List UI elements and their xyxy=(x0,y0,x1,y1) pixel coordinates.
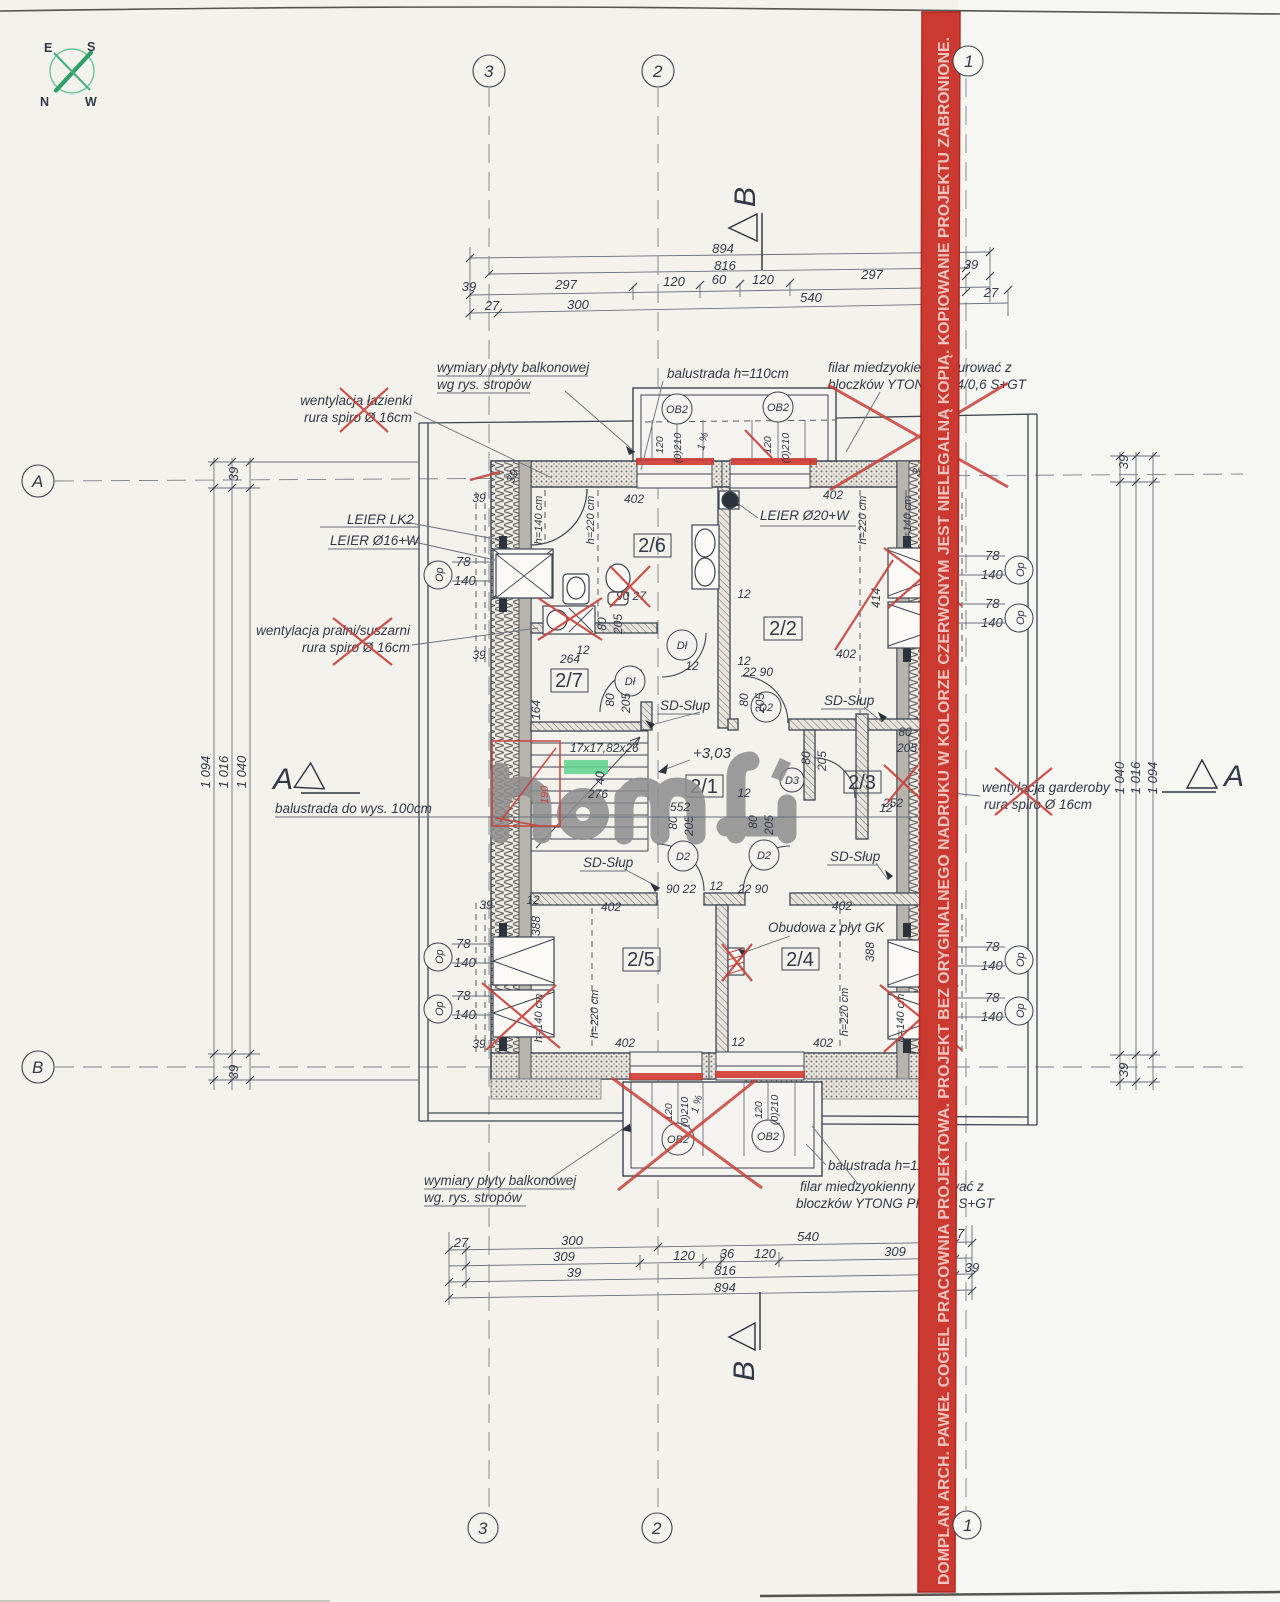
svg-text:120: 120 xyxy=(654,436,666,454)
svg-text:Dł: Dł xyxy=(677,640,688,652)
svg-text:2/4: 2/4 xyxy=(786,949,814,971)
svg-text:1 040: 1 040 xyxy=(234,755,249,788)
svg-text:B: B xyxy=(729,187,762,207)
svg-text:60: 60 xyxy=(712,272,727,287)
svg-text:402: 402 xyxy=(823,488,843,502)
svg-text:bloczków YTONG PP4/0,6 S+GT: bloczków YTONG PP4/0,6 S+GT xyxy=(796,1196,996,1211)
svg-text:39: 39 xyxy=(1116,1063,1131,1077)
svg-text:540: 540 xyxy=(797,1229,819,1244)
svg-text:27: 27 xyxy=(983,285,999,300)
svg-text:190: 190 xyxy=(539,785,551,804)
svg-text:12: 12 xyxy=(709,879,723,893)
svg-text:78: 78 xyxy=(456,936,471,951)
svg-text:1 040: 1 040 xyxy=(1112,761,1127,794)
svg-text:80: 80 xyxy=(737,693,751,707)
svg-text:140: 140 xyxy=(454,955,476,970)
svg-text:2/2: 2/2 xyxy=(769,618,797,640)
svg-text:OB2: OB2 xyxy=(767,402,789,414)
svg-text:297: 297 xyxy=(860,267,883,282)
svg-text:27: 27 xyxy=(453,1235,469,1250)
svg-text:h=220 cm: h=220 cm xyxy=(589,990,601,1039)
svg-text:OB2: OB2 xyxy=(666,404,688,416)
svg-text:B: B xyxy=(728,1361,761,1381)
svg-text:balustrada h=110cm: balustrada h=110cm xyxy=(667,366,789,381)
svg-text:2/7: 2/7 xyxy=(555,670,583,692)
svg-text:309: 309 xyxy=(884,1244,906,1259)
svg-text:1 016: 1 016 xyxy=(1128,761,1143,794)
svg-text:205: 205 xyxy=(896,741,917,755)
svg-text:552: 552 xyxy=(670,800,690,814)
svg-text:D2: D2 xyxy=(676,851,690,863)
svg-text:140: 140 xyxy=(981,567,1003,582)
svg-text:39: 39 xyxy=(479,898,493,912)
svg-text:2: 2 xyxy=(651,1519,662,1538)
svg-text:78: 78 xyxy=(985,939,1000,954)
svg-text:39: 39 xyxy=(226,467,241,481)
svg-text:205: 205 xyxy=(619,693,633,714)
svg-text:78: 78 xyxy=(456,988,471,1003)
svg-text:1 094: 1 094 xyxy=(198,756,213,789)
svg-text:DOMPLAN ARCH. PAWEŁ COGIEL PRA: DOMPLAN ARCH. PAWEŁ COGIEL PRACOWNIA PRO… xyxy=(936,37,953,1585)
svg-text:3: 3 xyxy=(484,62,494,81)
svg-text:388: 388 xyxy=(863,942,877,962)
svg-text:22 90: 22 90 xyxy=(737,882,768,896)
svg-text:140: 140 xyxy=(981,958,1003,973)
svg-text:(0)210: (0)210 xyxy=(780,433,792,464)
svg-text:39: 39 xyxy=(226,1065,241,1079)
svg-text:A: A xyxy=(31,472,43,491)
svg-text:27: 27 xyxy=(484,298,500,313)
svg-text:120: 120 xyxy=(673,1248,695,1263)
svg-text:297: 297 xyxy=(554,277,577,292)
svg-text:1: 1 xyxy=(963,1516,972,1535)
svg-text:Op: Op xyxy=(1015,952,1027,967)
svg-text:12: 12 xyxy=(526,893,540,907)
svg-text:78: 78 xyxy=(985,990,1000,1005)
svg-text:Op: Op xyxy=(1015,610,1027,625)
svg-text:540: 540 xyxy=(800,290,822,305)
svg-text:h=140 cm: h=140 cm xyxy=(533,496,545,545)
svg-text:h=220 cm: h=220 cm xyxy=(585,496,597,545)
svg-text:S: S xyxy=(87,40,95,54)
svg-text:300: 300 xyxy=(567,297,589,312)
svg-text:Dł: Dł xyxy=(625,676,636,688)
svg-text:120: 120 xyxy=(753,1101,765,1119)
svg-text:2/5: 2/5 xyxy=(627,949,655,971)
svg-text:A: A xyxy=(271,763,293,796)
svg-text:39: 39 xyxy=(472,1037,486,1051)
svg-text:wg. rys. stropów: wg. rys. stropów xyxy=(424,1190,523,1205)
svg-text:120: 120 xyxy=(663,274,685,289)
svg-text:12: 12 xyxy=(737,587,751,601)
svg-text:402: 402 xyxy=(832,899,852,913)
svg-text:120: 120 xyxy=(754,1246,776,1261)
svg-text:402: 402 xyxy=(615,1036,635,1050)
svg-text:80: 80 xyxy=(898,725,912,739)
svg-text:1 016: 1 016 xyxy=(216,755,231,788)
svg-text:12: 12 xyxy=(737,654,751,668)
svg-text:39: 39 xyxy=(462,279,476,294)
svg-text:12: 12 xyxy=(685,659,699,673)
svg-text:1 094: 1 094 xyxy=(1145,762,1160,795)
svg-text:2/3: 2/3 xyxy=(848,772,876,794)
svg-text:D3: D3 xyxy=(785,775,800,787)
svg-text:rura spiro Ø 16cm: rura spiro Ø 16cm xyxy=(304,410,412,425)
svg-text:388: 388 xyxy=(529,916,543,936)
svg-text:(0)210: (0)210 xyxy=(672,433,684,464)
svg-text:2/6: 2/6 xyxy=(638,535,666,557)
svg-text:OB2: OB2 xyxy=(757,1131,779,1143)
svg-text:816: 816 xyxy=(714,258,736,273)
svg-text:Op: Op xyxy=(434,567,446,582)
svg-text:2: 2 xyxy=(652,62,663,81)
svg-text:39: 39 xyxy=(965,1260,979,1275)
svg-text:39: 39 xyxy=(567,1265,581,1280)
svg-text:balustrada do wys. 100cm: balustrada do wys. 100cm xyxy=(275,801,432,816)
svg-text:205: 205 xyxy=(762,815,776,836)
svg-text:D2: D2 xyxy=(757,850,771,862)
svg-text:Op: Op xyxy=(1015,562,1027,577)
svg-text:205: 205 xyxy=(611,614,625,635)
svg-text:276: 276 xyxy=(587,787,608,801)
svg-text:894: 894 xyxy=(712,241,734,256)
svg-text:78: 78 xyxy=(985,548,1000,563)
svg-text:300: 300 xyxy=(561,1233,583,1248)
svg-text:1: 1 xyxy=(964,52,973,71)
svg-text:39: 39 xyxy=(472,648,486,662)
svg-text:12: 12 xyxy=(879,801,893,815)
svg-text:309: 309 xyxy=(553,1249,575,1264)
svg-text:120: 120 xyxy=(762,436,774,454)
svg-text:36: 36 xyxy=(720,1246,735,1261)
svg-text:A: A xyxy=(1222,760,1244,793)
svg-text:+3,03: +3,03 xyxy=(693,745,732,762)
svg-text:140: 140 xyxy=(454,1007,476,1022)
svg-text:SD-Słup: SD-Słup xyxy=(660,698,711,713)
svg-text:402: 402 xyxy=(601,900,621,914)
svg-text:39: 39 xyxy=(472,491,486,505)
svg-text:3: 3 xyxy=(478,1519,488,1538)
svg-text:164: 164 xyxy=(529,700,543,720)
svg-text:W: W xyxy=(85,95,97,109)
svg-text:SD-Słup: SD-Słup xyxy=(830,849,881,864)
svg-text:402: 402 xyxy=(836,647,856,661)
svg-text:SD-Słup: SD-Słup xyxy=(583,855,634,870)
svg-text:wentylacja pralni/suszarni: wentylacja pralni/suszarni xyxy=(256,623,411,638)
svg-text:(0)210: (0)210 xyxy=(769,1095,781,1126)
svg-text:wymiary płyty balkonowej: wymiary płyty balkonowej xyxy=(437,360,590,375)
svg-text:205: 205 xyxy=(753,693,767,714)
svg-text:140: 140 xyxy=(981,615,1003,630)
svg-text:h=140 cm: h=140 cm xyxy=(902,496,914,545)
svg-text:LEIER LK2: LEIER LK2 xyxy=(347,512,414,527)
svg-text:120: 120 xyxy=(752,272,774,287)
svg-text:80: 80 xyxy=(666,816,680,830)
svg-text:E: E xyxy=(44,41,52,55)
svg-text:40: 40 xyxy=(593,771,607,785)
svg-text:filar miedzyokienny murować z: filar miedzyokienny murować z xyxy=(828,360,1012,375)
svg-text:402: 402 xyxy=(813,1036,833,1050)
svg-text:39: 39 xyxy=(1116,455,1131,469)
svg-text:Op: Op xyxy=(1015,1003,1027,1018)
svg-text:12: 12 xyxy=(731,1035,745,1049)
svg-text:wg rys. stropów: wg rys. stropów xyxy=(437,377,532,392)
svg-text:402: 402 xyxy=(624,492,644,506)
svg-text:N: N xyxy=(40,95,49,109)
svg-text:39: 39 xyxy=(964,257,978,272)
svg-text:894: 894 xyxy=(714,1280,736,1295)
svg-text:80: 80 xyxy=(799,751,813,765)
svg-text:Op: Op xyxy=(434,949,446,964)
svg-text:140: 140 xyxy=(981,1009,1003,1024)
svg-text:12: 12 xyxy=(737,786,751,800)
svg-text:205: 205 xyxy=(815,751,829,772)
svg-text:80: 80 xyxy=(603,693,617,707)
svg-text:B: B xyxy=(32,1058,43,1077)
svg-text:140: 140 xyxy=(454,573,476,588)
svg-text:90 22: 90 22 xyxy=(666,882,696,896)
svg-text:12: 12 xyxy=(576,643,590,657)
svg-text:Op: Op xyxy=(434,1001,446,1016)
svg-text:LEIER Ø20+W: LEIER Ø20+W xyxy=(760,508,850,523)
svg-text:wentylacja garderoby: wentylacja garderoby xyxy=(982,780,1111,795)
svg-text:78: 78 xyxy=(456,554,471,569)
svg-text:78: 78 xyxy=(985,596,1000,611)
svg-text:h=220 cm: h=220 cm xyxy=(839,988,851,1037)
svg-text:414: 414 xyxy=(869,588,883,608)
svg-text:Obudowa z płyt GK: Obudowa z płyt GK xyxy=(768,920,885,935)
svg-text:17x17,82x26: 17x17,82x26 xyxy=(570,741,639,755)
svg-text:80: 80 xyxy=(595,617,609,631)
svg-text:wentylacja łazienki: wentylacja łazienki xyxy=(300,393,413,408)
svg-text:816: 816 xyxy=(714,1263,736,1278)
svg-text:SD-Słup: SD-Słup xyxy=(824,693,875,708)
svg-text:h=220 cm: h=220 cm xyxy=(857,496,869,545)
svg-text:205: 205 xyxy=(682,816,696,837)
